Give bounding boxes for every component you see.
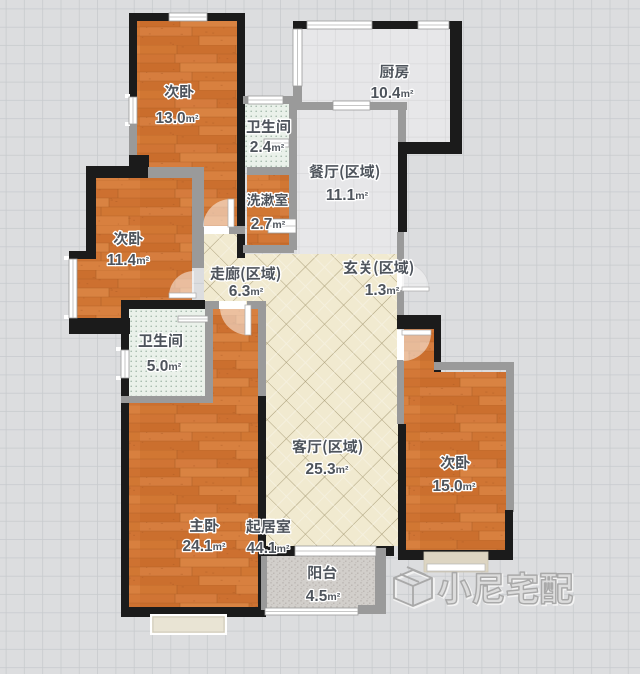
svg-text:44.1m²: 44.1m² <box>246 540 290 557</box>
svg-text:13.0m²: 13.0m² <box>155 110 199 127</box>
svg-text:1.3m²: 1.3m² <box>365 282 400 299</box>
svg-text:6.3m²: 6.3m² <box>229 283 264 300</box>
svg-text:24.1m²: 24.1m² <box>182 538 226 555</box>
svg-text:10.4m²: 10.4m² <box>370 85 414 102</box>
svg-text:4.5m²: 4.5m² <box>306 588 341 605</box>
svg-text:2.7m²: 2.7m² <box>251 216 286 233</box>
svg-text:2.4m²: 2.4m² <box>250 139 285 156</box>
svg-text:11.1m²: 11.1m² <box>326 187 369 204</box>
svg-text:25.3m²: 25.3m² <box>305 461 349 478</box>
svg-text:15.0m²: 15.0m² <box>432 478 476 495</box>
svg-text:11.4m²: 11.4m² <box>107 252 150 269</box>
svg-text:5.0m²: 5.0m² <box>147 358 182 375</box>
